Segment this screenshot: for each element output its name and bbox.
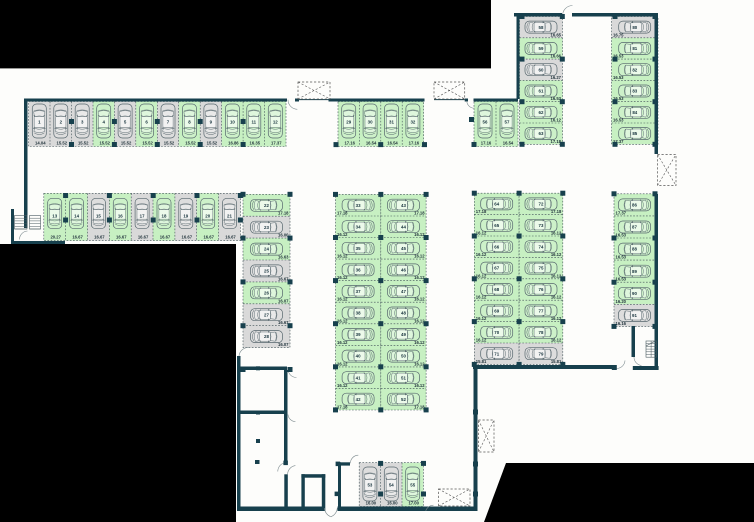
svg-text:17.18: 17.18 [337,405,348,410]
svg-text:15.52: 15.52 [121,140,132,145]
svg-text:83: 83 [632,89,637,94]
svg-text:85: 85 [632,131,637,136]
svg-text:16.12: 16.12 [414,297,425,302]
svg-text:30: 30 [368,120,373,125]
svg-text:16: 16 [118,214,123,219]
svg-text:16.53: 16.53 [616,233,627,238]
svg-text:16.12: 16.12 [551,252,562,257]
svg-text:16.12: 16.12 [551,295,562,300]
svg-text:63: 63 [539,131,544,136]
svg-text:17.18: 17.18 [476,209,487,214]
svg-text:60: 60 [539,67,544,72]
svg-text:14.04: 14.04 [35,140,46,145]
svg-text:15.81: 15.81 [476,359,487,364]
svg-text:29: 29 [346,120,351,125]
svg-text:11: 11 [251,120,256,125]
svg-text:16.12: 16.12 [337,254,348,259]
svg-text:16.67: 16.67 [278,320,289,325]
svg-text:33: 33 [356,203,361,208]
svg-text:20.27: 20.27 [50,234,61,239]
svg-text:16.67: 16.67 [94,234,105,239]
svg-text:16.07: 16.07 [278,342,289,347]
svg-text:53: 53 [367,483,372,488]
svg-text:16.12: 16.12 [337,361,348,366]
svg-text:68: 68 [494,287,499,292]
svg-text:16.12: 16.12 [414,275,425,280]
svg-text:72: 72 [539,202,544,207]
svg-text:45: 45 [401,246,406,251]
svg-text:16.35: 16.35 [250,140,261,145]
svg-text:15.52: 15.52 [99,140,110,145]
svg-text:16.53: 16.53 [616,277,627,282]
svg-text:66: 66 [494,244,499,249]
svg-text:17.16: 17.16 [344,140,355,145]
svg-text:17: 17 [140,214,145,219]
svg-text:48: 48 [401,311,406,316]
svg-text:78: 78 [539,330,544,335]
svg-text:28: 28 [264,334,269,339]
svg-text:77: 77 [539,309,544,314]
svg-text:15.52: 15.52 [207,140,218,145]
svg-text:61: 61 [539,89,544,94]
svg-text:52: 52 [401,397,406,402]
svg-text:16.63: 16.63 [278,255,289,260]
svg-text:16.12: 16.12 [337,232,348,237]
svg-text:14: 14 [74,214,79,219]
svg-text:55: 55 [410,483,415,488]
svg-text:17.18: 17.18 [414,405,425,410]
svg-text:16.12: 16.12 [476,252,487,257]
svg-text:21: 21 [227,214,232,219]
svg-text:16.12: 16.12 [414,318,425,323]
svg-text:16.65: 16.65 [551,32,562,37]
svg-text:35: 35 [356,246,361,251]
svg-text:59: 59 [539,46,544,51]
svg-text:16.12: 16.12 [414,254,425,259]
svg-text:91: 91 [632,313,637,318]
svg-text:82: 82 [632,67,637,72]
svg-text:16.54: 16.54 [387,140,398,145]
svg-text:15.52: 15.52 [78,140,89,145]
svg-text:16.67: 16.67 [182,234,193,239]
svg-text:41: 41 [356,375,361,380]
svg-text:15.52: 15.52 [185,140,196,145]
svg-text:16.67: 16.67 [203,234,214,239]
svg-text:16.12: 16.12 [476,231,487,236]
svg-text:17.18: 17.18 [414,211,425,216]
svg-text:43: 43 [401,203,406,208]
svg-text:16.12: 16.12 [476,295,487,300]
svg-text:16.12: 16.12 [476,316,487,321]
svg-text:57: 57 [505,120,510,125]
svg-text:16.67: 16.67 [225,234,236,239]
svg-text:16.75: 16.75 [613,32,624,37]
svg-text:16.12: 16.12 [551,231,562,236]
svg-text:20: 20 [205,214,210,219]
svg-text:23: 23 [264,225,269,230]
svg-text:15.81: 15.81 [551,359,562,364]
svg-text:17.37: 17.37 [271,140,282,145]
svg-text:16.12: 16.12 [337,340,348,345]
svg-text:69: 69 [494,309,499,314]
svg-text:17.16: 17.16 [481,140,492,145]
svg-text:79: 79 [539,351,544,356]
svg-text:16.53: 16.53 [616,255,627,260]
svg-text:86: 86 [632,203,637,208]
svg-text:47: 47 [401,289,406,294]
svg-text:18: 18 [162,214,167,219]
svg-text:51: 51 [401,375,406,380]
svg-text:17.00: 17.00 [408,500,419,505]
svg-text:58: 58 [539,25,544,30]
svg-text:73: 73 [539,223,544,228]
svg-text:16.16: 16.16 [616,321,627,326]
svg-text:10: 10 [230,120,235,125]
svg-text:88: 88 [632,247,637,252]
svg-text:16.54: 16.54 [366,140,377,145]
svg-text:16.12: 16.12 [337,383,348,388]
svg-text:76: 76 [539,287,544,292]
svg-text:84: 84 [632,110,637,115]
svg-text:16.12: 16.12 [551,273,562,278]
svg-text:22: 22 [264,203,269,208]
svg-text:87: 87 [632,225,637,230]
svg-text:16.67: 16.67 [160,234,171,239]
svg-text:38: 38 [356,311,361,316]
svg-text:16.67: 16.67 [72,234,83,239]
svg-text:16.12: 16.12 [337,297,348,302]
svg-text:16.07: 16.07 [278,298,289,303]
svg-text:12: 12 [273,120,278,125]
svg-text:40: 40 [356,354,361,359]
svg-text:17.18: 17.18 [278,211,289,216]
svg-text:17.37: 17.37 [616,210,627,215]
svg-text:81: 81 [632,46,637,51]
svg-text:27: 27 [264,312,269,317]
svg-text:54: 54 [389,483,394,488]
svg-text:16.12: 16.12 [337,318,348,323]
svg-text:71: 71 [494,351,499,356]
svg-text:15: 15 [96,214,101,219]
svg-text:75: 75 [539,266,544,271]
svg-text:74: 74 [539,244,544,249]
svg-text:16.67: 16.67 [138,234,149,239]
svg-text:17.16: 17.16 [409,140,420,145]
svg-text:16.00: 16.00 [387,500,398,505]
svg-text:16.12: 16.12 [414,340,425,345]
svg-text:16.00: 16.00 [366,500,377,505]
svg-text:36: 36 [356,268,361,273]
svg-text:16.53: 16.53 [613,75,624,80]
svg-text:26: 26 [264,290,269,295]
svg-text:16.12: 16.12 [476,338,487,343]
svg-text:37: 37 [356,289,361,294]
svg-text:42: 42 [356,397,361,402]
svg-text:17.18: 17.18 [337,211,348,216]
svg-text:24: 24 [264,247,269,252]
svg-text:15.52: 15.52 [164,140,175,145]
svg-text:64: 64 [494,202,499,207]
svg-text:13: 13 [52,214,57,219]
svg-text:16.53: 16.53 [613,118,624,123]
svg-text:17.18: 17.18 [551,209,562,214]
svg-text:62: 62 [539,110,544,115]
svg-text:39: 39 [356,332,361,337]
svg-text:16.54: 16.54 [503,140,514,145]
svg-text:34: 34 [356,224,361,229]
svg-text:46: 46 [401,268,406,273]
svg-text:15.52: 15.52 [57,140,68,145]
svg-text:67: 67 [494,266,499,271]
svg-text:44: 44 [401,224,406,229]
svg-text:16.20: 16.20 [616,299,627,304]
svg-text:16.12: 16.12 [551,118,562,123]
svg-text:15.52: 15.52 [142,140,153,145]
svg-text:80: 80 [632,25,637,30]
svg-text:16.12: 16.12 [414,361,425,366]
svg-text:31: 31 [389,120,394,125]
svg-text:16.67: 16.67 [278,276,289,281]
svg-text:90: 90 [632,291,637,296]
svg-text:16.12: 16.12 [414,383,425,388]
svg-text:70: 70 [494,330,499,335]
svg-text:25: 25 [264,269,269,274]
svg-text:19: 19 [183,214,188,219]
svg-text:16.12: 16.12 [414,232,425,237]
svg-text:16.12: 16.12 [476,273,487,278]
svg-text:32: 32 [410,120,415,125]
svg-text:16.86: 16.86 [228,140,239,145]
svg-text:16.67: 16.67 [116,234,127,239]
svg-text:16.12: 16.12 [551,316,562,321]
svg-text:16.00: 16.00 [278,233,289,238]
svg-text:56: 56 [483,120,488,125]
svg-text:50: 50 [401,354,406,359]
svg-text:16.27: 16.27 [551,75,562,80]
svg-text:16.12: 16.12 [551,338,562,343]
svg-text:16.12: 16.12 [337,275,348,280]
svg-text:89: 89 [632,269,637,274]
svg-text:49: 49 [401,332,406,337]
svg-text:65: 65 [494,223,499,228]
